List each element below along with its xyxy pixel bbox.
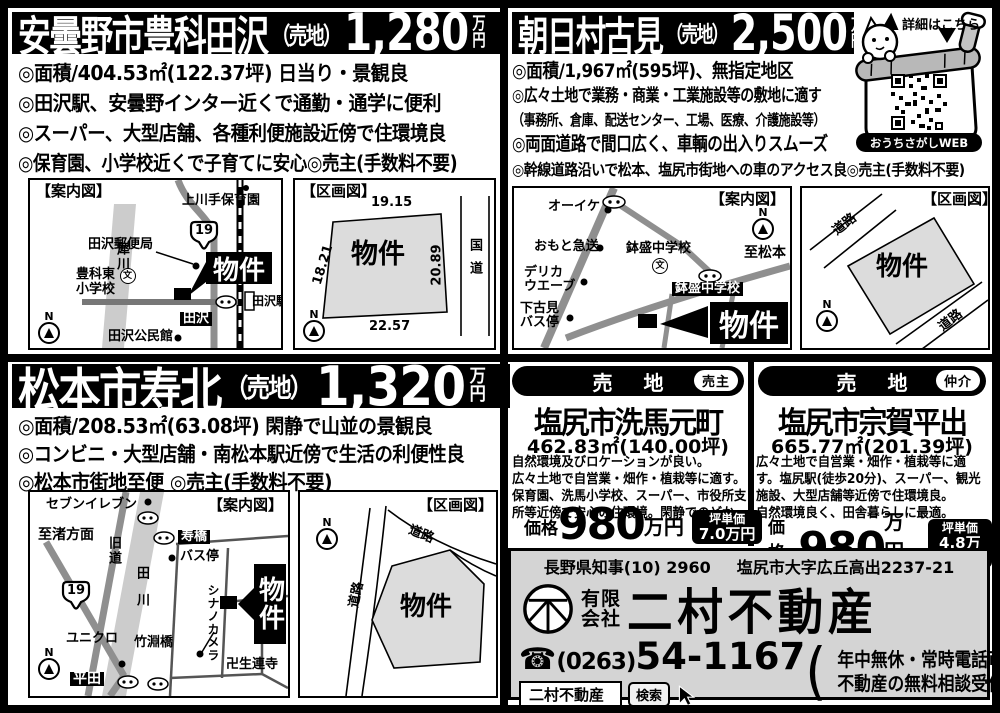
map-label-school: 鉢盛中学校 bbox=[626, 242, 691, 256]
map-label-shop3-2: ウエーブ bbox=[524, 280, 575, 294]
north-compass-icon: N bbox=[816, 300, 838, 332]
tazawa-plot-map: 【区画図】 19.15 18.21 20.89 22.57 物件 国道 N bbox=[293, 178, 496, 350]
phone-number: 54-1167 bbox=[635, 635, 805, 678]
north-compass-icon: N bbox=[38, 312, 60, 344]
seller-badge: 売主 bbox=[694, 370, 738, 391]
corp-type-line2: 会社 bbox=[581, 609, 621, 629]
cursor-icon bbox=[676, 684, 696, 706]
map-caption: 【案内図】 bbox=[36, 184, 111, 198]
price-unit: 万円 bbox=[644, 511, 684, 540]
divider-horizontal bbox=[8, 354, 992, 362]
map-label-crossing: 田沢 bbox=[180, 312, 212, 326]
service-note: ( 年中無休・常時電話可 不動産の無料相談受付 ) bbox=[805, 635, 1000, 708]
agency-badge: 仲介 bbox=[936, 370, 980, 391]
map-label-river: 田川 bbox=[134, 566, 148, 620]
route-19-badge: 19 bbox=[60, 580, 92, 610]
school-mark-icon: 文 bbox=[120, 268, 136, 284]
map-label-bridge2: 竹淵橋 bbox=[134, 636, 173, 650]
map-label-bus: バス停 bbox=[180, 550, 219, 564]
map-label-shop3-1: デリカ bbox=[524, 266, 563, 280]
phone-area-code: (0263) bbox=[556, 649, 635, 675]
map-label-crossing: 平田 bbox=[70, 672, 104, 686]
kotobuki-plot-map: 【区画図】 道路 道路 物件 N bbox=[298, 490, 498, 698]
description-line: 自然環境及びロケーションが良い。 bbox=[512, 454, 746, 471]
north-compass-icon: N bbox=[38, 648, 60, 680]
web-service-label: おうちさがしWEB bbox=[856, 133, 982, 152]
bullet: ◎幹線道路沿いで松本、塩尻市街地への車のアクセス良◎売主(手数料不要) bbox=[512, 158, 944, 183]
search-hint-row: 二村不動産 検索 bbox=[519, 681, 805, 708]
description-line: 広々土地で自営業・畑作・植栽等に適す。 bbox=[512, 471, 746, 488]
bullet: （事務所、倉庫、配送センター、工場、医療、介護施設等） bbox=[512, 109, 896, 131]
map-label-shop2: おもと急送 bbox=[534, 240, 599, 254]
map-label-hall: 田沢公民館 bbox=[108, 330, 173, 344]
north-compass-icon: N bbox=[303, 310, 325, 342]
sale-banner-text: 売 地 bbox=[593, 367, 676, 396]
map-label-bus-1: 下古見 bbox=[520, 302, 559, 316]
search-button: 検索 bbox=[628, 682, 670, 707]
price-value: 980 bbox=[558, 506, 644, 544]
phone-icon: ☎ bbox=[519, 642, 556, 677]
parcel-label: 物件 bbox=[351, 248, 405, 262]
corp-type-line1: 有限 bbox=[581, 589, 621, 609]
map-label-old-road: 旧道 bbox=[106, 536, 120, 566]
map-label-station: 田沢駅 bbox=[252, 294, 283, 308]
description-line: す。塩尻駅(徒歩20分)、スーパー、観光 bbox=[756, 471, 981, 488]
sale-type: （売地） bbox=[666, 17, 727, 49]
dim-bottom: 22.57 bbox=[369, 320, 410, 334]
tazawa-guide-map: 【案内図】 上川手保育園 19 田沢郵便局 犀川 豊科東 文 小学校 物件 田沢… bbox=[28, 178, 283, 350]
map-caption: 【区画図】 bbox=[418, 498, 493, 512]
company-logo-icon bbox=[521, 582, 575, 636]
north-compass-icon: N bbox=[316, 518, 338, 550]
parcel-label: 物件 bbox=[400, 600, 452, 614]
sale-type: （売地） bbox=[272, 16, 341, 51]
divider-vertical-bottom bbox=[500, 362, 508, 705]
price-unit-en: 円 bbox=[470, 386, 486, 404]
description-line: 施設、大型店舗等近傍で住環境良。 bbox=[756, 488, 981, 505]
company-name: 二村不動産 bbox=[627, 573, 878, 644]
phone-and-search: ☎ (0263) 54-1167 二村不動産 検索 bbox=[519, 635, 805, 708]
search-input: 二村不動産 bbox=[519, 681, 622, 708]
price-label: 価格 bbox=[524, 514, 558, 539]
dim-right: 20.89 bbox=[431, 244, 445, 285]
map-caption: 【区画図】 bbox=[922, 192, 990, 206]
asahi-plot-map: 【区画図】 道路 道路 物件 N bbox=[800, 186, 990, 350]
price-unit-man: 万 bbox=[470, 368, 486, 386]
price: 1,280 bbox=[344, 12, 468, 54]
property-marker-label: 物件 bbox=[254, 564, 286, 644]
paren-open: ( bbox=[805, 640, 826, 702]
map-caption: 【案内図】 bbox=[208, 498, 283, 512]
dim-top: 19.15 bbox=[371, 196, 412, 210]
down-arrow-icon bbox=[938, 28, 956, 43]
divider-vertical-top bbox=[500, 8, 508, 354]
map-caption: 【区画図】 bbox=[301, 184, 376, 198]
price-unit-en: 円 bbox=[472, 33, 485, 50]
price-unit-man: 万 bbox=[472, 16, 485, 33]
price: 2,500 bbox=[731, 12, 847, 54]
bullet: ◎保育園、小学校近くで子育てに安心◎売主(手数料不要) bbox=[18, 148, 442, 178]
map-label-camera: シナノカメラ bbox=[206, 584, 220, 662]
phone-row: ☎ (0263) 54-1167 bbox=[519, 635, 805, 678]
description-line: 広々土地で自営業・畑作・植栽等に適 bbox=[756, 454, 981, 471]
map-label-uniqlo: ユニクロ bbox=[66, 632, 118, 646]
property-marker-label: 物件 bbox=[206, 252, 272, 284]
property-marker-label: 物件 bbox=[710, 302, 788, 344]
listing-tazawa-header: 安曇野市豊科田沢 （売地） 1,280 万 円 bbox=[12, 12, 508, 54]
note-line1: 年中無休・常時電話可 bbox=[838, 648, 1000, 672]
listing-title: 安曇野市豊科田沢 bbox=[18, 12, 268, 54]
tsubo-price-box: 坪単価 7.0万円 bbox=[692, 510, 763, 544]
company-name-row: 有限 会社 二村不動産 bbox=[521, 573, 897, 644]
price-row: 価格 980 万円 坪単価 7.0万円 bbox=[524, 506, 762, 544]
bullet: ◎スーパー、大型店舗、各種利便施設近傍で住環境良 bbox=[18, 118, 461, 148]
soga-banner: 売 地 仲介 bbox=[758, 366, 986, 396]
sale-banner-text: 売 地 bbox=[837, 367, 920, 396]
listing-title: 松本市寿北 bbox=[18, 364, 221, 408]
real-estate-flyer: 安曇野市豊科田沢 （売地） 1,280 万 円 ◎面積/404.53㎡(122.… bbox=[0, 0, 1000, 713]
listing-title: 朝日村古見 bbox=[518, 12, 662, 54]
map-label-bus-2: バス停 bbox=[520, 316, 559, 330]
bullet: ◎コンビニ・大型店舗・南松本駅近傍で生活の利便性良 bbox=[18, 440, 461, 468]
seba-banner: 売 地 売主 bbox=[512, 366, 744, 396]
kotobuki-guide-map: 【案内図】 セブンイレブン 寿橋 バス停 至渚方面 旧道 田川 19 ユニクロ … bbox=[28, 490, 290, 698]
map-label-school-black: 鉢盛中学校 bbox=[672, 282, 743, 296]
route-19-badge: 19 bbox=[188, 220, 220, 250]
north-compass-icon: N bbox=[752, 208, 774, 240]
map-caption: 【案内図】 bbox=[710, 192, 785, 206]
map-label-bridge1: 寿橋 bbox=[178, 530, 210, 544]
map-label-to-nagisa: 至渚方面 bbox=[38, 528, 94, 542]
note-line2: 不動産の無料相談受付 bbox=[838, 672, 1000, 696]
map-label-shop1: オーイケ bbox=[548, 200, 600, 214]
bullet: ◎面積/208.53㎡(63.08坪) 閑静で山並の景観良 bbox=[18, 412, 476, 440]
asahi-guide-map: 【案内図】 オーイケ おもと急送 鉢盛中学校 文 デリカ ウエーブ 至松本 鉢盛… bbox=[512, 186, 792, 350]
map-label-temple: 卍生連寺 bbox=[226, 658, 278, 672]
company-info-panel: 長野県知事(10) 2960 塩尻市大字広丘高出2237-21 有限 会社 二村… bbox=[508, 548, 990, 700]
map-label-to-matsumoto: 至松本 bbox=[744, 246, 786, 260]
bullet: ◎面積/404.53㎡(122.37坪) 日当り・景観良 bbox=[18, 58, 476, 88]
school-mark-icon: 文 bbox=[652, 258, 668, 274]
map-label-nursery: 上川手保育園 bbox=[182, 194, 260, 208]
parcel-label: 物件 bbox=[876, 260, 928, 274]
price: 1,320 bbox=[316, 364, 465, 408]
road-label: 国道 bbox=[467, 238, 481, 284]
map-label-seven: セブンイレブン bbox=[46, 498, 137, 512]
bullet: ◎田沢駅、安曇野インター近くで通勤・通学に便利 bbox=[18, 88, 476, 118]
sale-type: （売地） bbox=[225, 368, 311, 405]
listing-kotobuki-header: 松本市寿北 （売地） 1,320 万 円 bbox=[12, 364, 510, 408]
listing-asahi-header: 朝日村古見 （売地） 2,500 万 円 bbox=[512, 12, 854, 54]
map-label-school-2: 小学校 bbox=[76, 283, 115, 297]
mascot-qr-panel: 詳細はこちら おうちさがしWEB bbox=[846, 10, 992, 152]
